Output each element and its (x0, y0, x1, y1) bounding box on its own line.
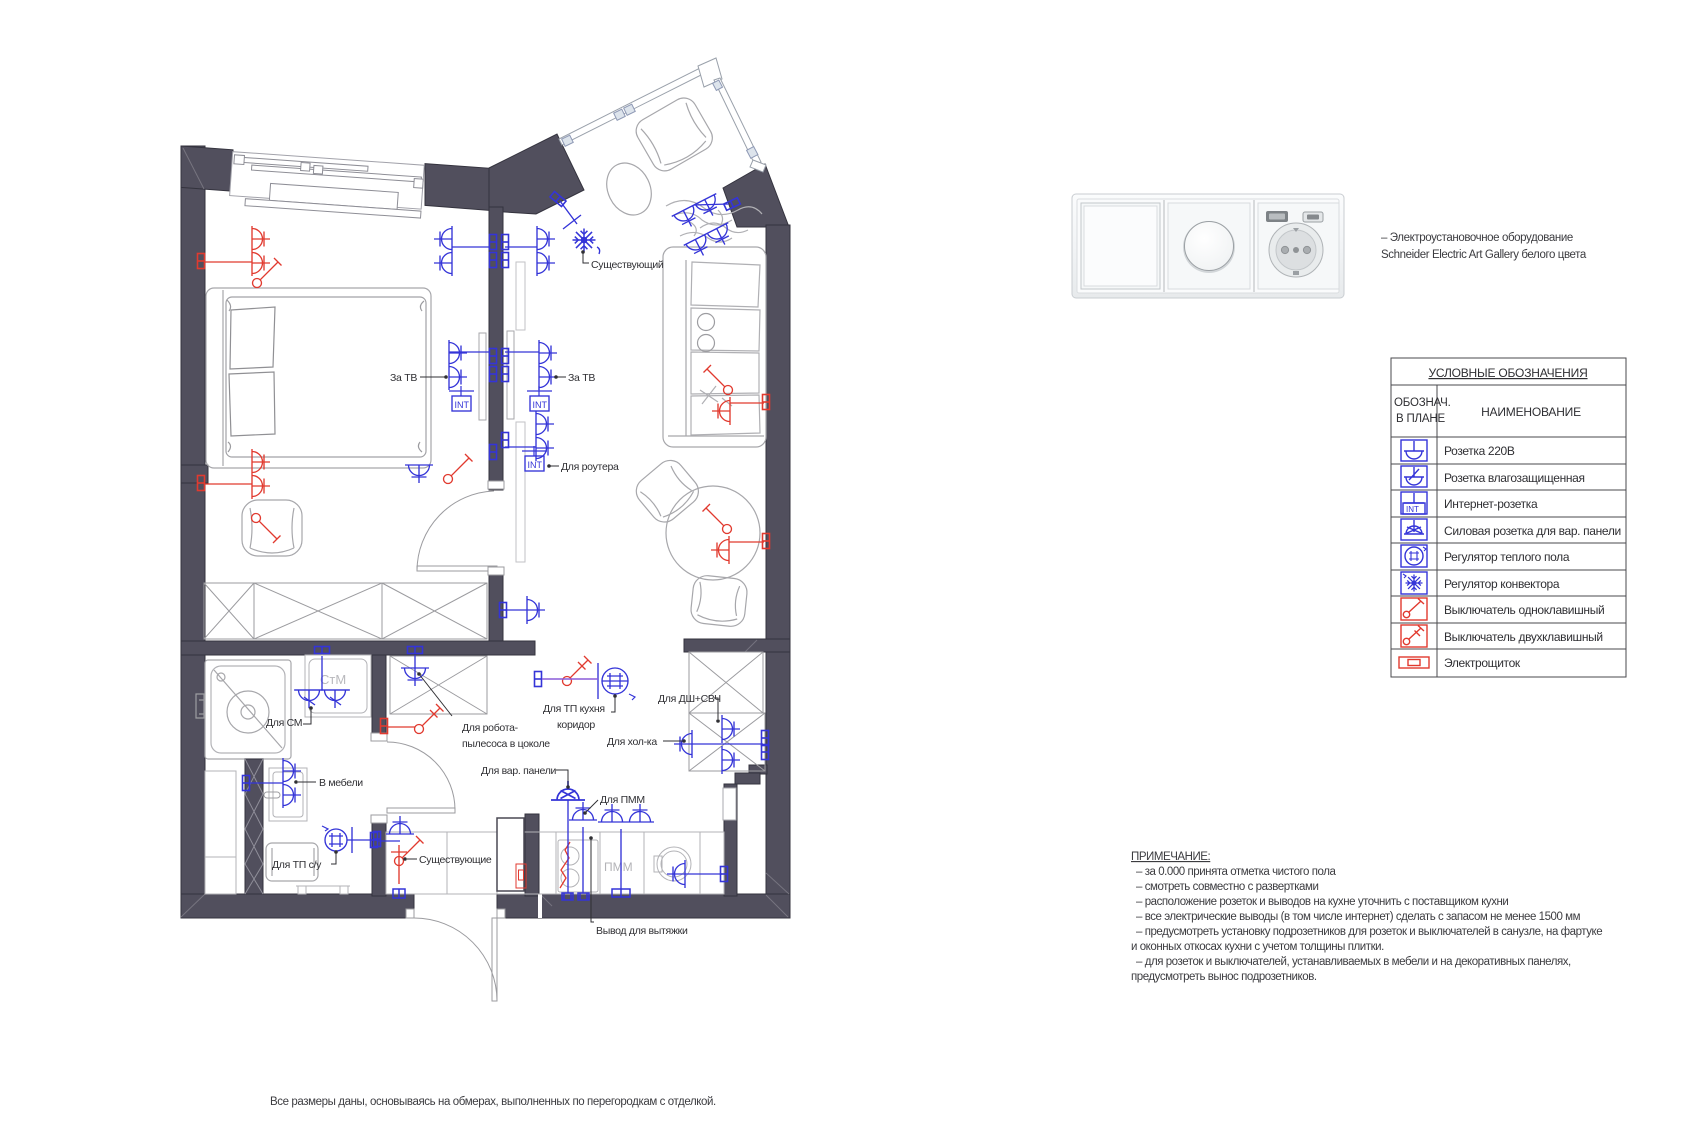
svg-text:Существующие: Существующие (419, 854, 492, 866)
svg-text:– для розеток и выключателей,: – для розеток и выключателей, устанавлив… (1136, 956, 1571, 968)
svg-text:Для ТП с/у: Для ТП с/у (272, 859, 322, 871)
svg-text:– смотреть совместно с разверт: – смотреть совместно с развертками (1136, 881, 1318, 893)
svg-text:INT: INT (1406, 505, 1419, 514)
svg-text:Существующий: Существующий (591, 259, 664, 271)
svg-text:пылесоса в цоколе: пылесоса в цоколе (462, 738, 550, 750)
svg-text:Розетка влагозащищенная: Розетка влагозащищенная (1444, 471, 1585, 485)
svg-text:Силовая розетка для вар. панел: Силовая розетка для вар. панели (1444, 524, 1621, 538)
svg-text:СтМ: СтМ (320, 672, 346, 687)
svg-text:УСЛОВНЫЕ ОБОЗНАЧЕНИЯ: УСЛОВНЫЕ ОБОЗНАЧЕНИЯ (1428, 366, 1587, 380)
svg-text:– за 0.000 принята отметка чис: – за 0.000 принята отметка чистого пола (1136, 866, 1336, 878)
svg-text:В мебели: В мебели (319, 777, 363, 789)
svg-text:Все размеры даны, основываясь: Все размеры даны, основываясь на обмерах… (270, 1096, 716, 1108)
svg-text:Для робота-: Для робота- (462, 722, 519, 734)
svg-text:коридор: коридор (557, 719, 595, 731)
svg-text:Для ДШ+СВЧ: Для ДШ+СВЧ (658, 693, 721, 705)
svg-text:Для вар. панели: Для вар. панели (481, 765, 557, 777)
svg-text:– Электроустановочное оборудов: – Электроустановочное оборудование (1381, 232, 1573, 244)
svg-text:ОБОЗНАЧ.: ОБОЗНАЧ. (1394, 397, 1451, 409)
svg-text:INT: INT (455, 400, 470, 410)
svg-text:ПРИМЕЧАНИЕ:: ПРИМЕЧАНИЕ: (1131, 851, 1211, 863)
svg-text:– предусмотреть установку подр: – предусмотреть установку подрозетников … (1136, 926, 1602, 938)
svg-text:В ПЛАНЕ: В ПЛАНЕ (1396, 413, 1445, 425)
svg-text:НАИМЕНОВАНИЕ: НАИМЕНОВАНИЕ (1481, 405, 1581, 419)
svg-text:За ТВ: За ТВ (568, 372, 595, 384)
svg-text:Для хол-ка: Для хол-ка (607, 736, 657, 748)
svg-text:Для СМ: Для СМ (266, 717, 302, 729)
svg-text:– расположение розеток и вывод: – расположение розеток и выводов на кухн… (1136, 896, 1508, 908)
svg-text:предусмотреть вынос подрозетни: предусмотреть вынос подрозетников. (1131, 971, 1317, 983)
svg-text:– все электрические выводы (в: – все электрические выводы (в том числе … (1136, 911, 1581, 923)
svg-text:Электрощиток: Электрощиток (1444, 656, 1521, 670)
svg-text:Регулятор конвектора: Регулятор конвектора (1444, 577, 1560, 591)
svg-text:Вывод для вытяжки: Вывод для вытяжки (596, 925, 688, 937)
svg-text:Розетка 220В: Розетка 220В (1444, 444, 1515, 458)
svg-text:Для роутера: Для роутера (561, 461, 619, 473)
svg-text:Регулятор теплого пола: Регулятор теплого пола (1444, 550, 1570, 564)
svg-text:INT: INT (533, 400, 548, 410)
svg-text:Интернет-розетка: Интернет-розетка (1444, 497, 1538, 511)
svg-text:и оконных откосах кухни с учет: и оконных откосах кухни с учетом толщины… (1131, 941, 1384, 953)
svg-text:ПММ: ПММ (604, 860, 633, 874)
svg-text:Для ТП кухня: Для ТП кухня (543, 703, 605, 715)
svg-text:Выключатель одноклавишный: Выключатель одноклавишный (1444, 603, 1604, 617)
svg-text:Выключатель двухклавишный: Выключатель двухклавишный (1444, 630, 1603, 644)
svg-text:Для ПММ: Для ПММ (600, 794, 645, 806)
svg-text:INT: INT (528, 460, 543, 470)
svg-text:За ТВ: За ТВ (390, 372, 417, 384)
svg-text:Schneider Electric Art Gallery: Schneider Electric Art Gallery белого цв… (1381, 249, 1587, 261)
